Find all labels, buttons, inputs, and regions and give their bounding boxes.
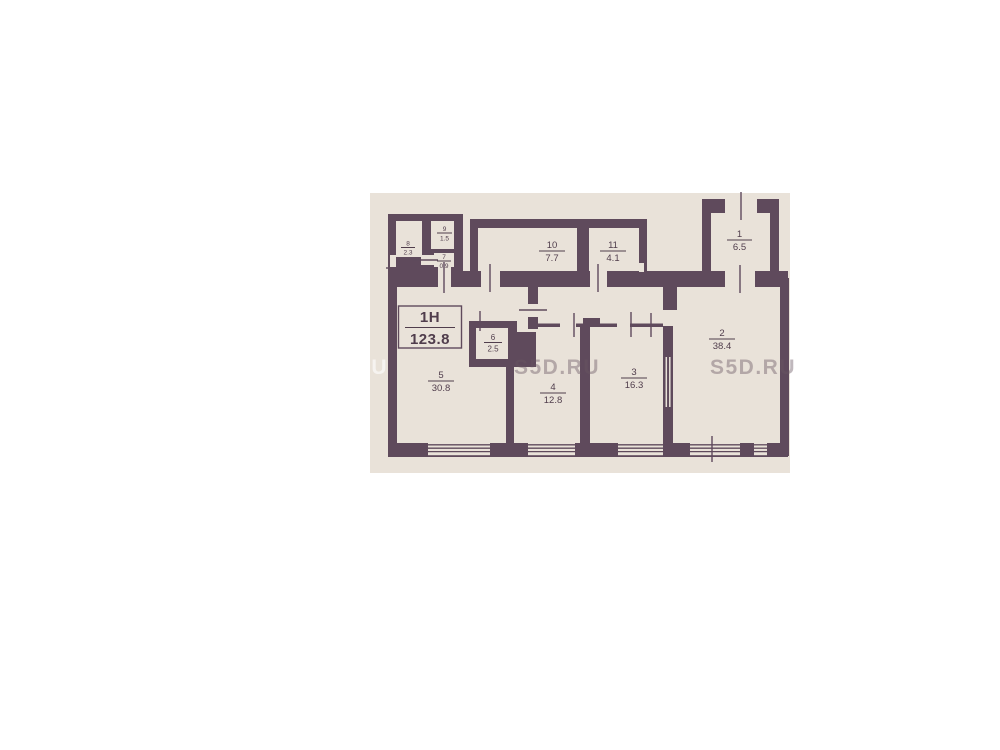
room-5-area: 30.8 (432, 383, 451, 394)
room11-notch (639, 263, 644, 272)
wall-main-horizontal-a (463, 271, 481, 287)
pier-4 (663, 443, 690, 457)
room-10-area: 7.7 (545, 253, 558, 264)
wall-room3-right (663, 326, 673, 443)
room-2-number: 2 (719, 328, 724, 339)
bottom-baseline (388, 455, 788, 457)
floor-plan: 1 6.5 2 38.4 3 16.3 4 12.8 5 30.8 6 2.5 (0, 0, 1000, 750)
watermark-right: S5D.RU (710, 356, 796, 379)
watermark-left: S5D.RU (302, 356, 388, 379)
wall-room3-4-divider (580, 326, 590, 443)
room-6-number: 6 (491, 333, 496, 342)
room-9-number: 9 (443, 226, 447, 233)
pier-6 (767, 443, 788, 457)
room-3-area: 16.3 (625, 380, 644, 391)
pier-2 (490, 443, 528, 457)
wall-hall-lower (528, 317, 538, 329)
wall-thin-a (536, 324, 560, 328)
wall-thin-thick-segment (583, 318, 600, 327)
room-9-area: 1.5 (440, 236, 449, 243)
wall-main-horizontal-b (500, 271, 590, 287)
room-7-number: 7 (442, 254, 446, 261)
room-4-number: 4 (550, 382, 555, 393)
wall-room2-stub (663, 287, 677, 310)
room-7-area: 0.9 (439, 263, 448, 270)
wall-room1-left (702, 199, 711, 287)
wall-thin-c (630, 324, 663, 328)
room-3-number: 3 (631, 367, 636, 378)
pier-1 (388, 443, 428, 457)
room-8-area: 2.3 (403, 250, 412, 257)
pier-5 (740, 443, 754, 457)
room-5-number: 5 (438, 370, 443, 381)
room-1-number: 1 (737, 229, 742, 240)
unit-name: 1Н (420, 309, 440, 326)
wall-hall-upper (528, 287, 538, 304)
room-4-area: 12.8 (544, 395, 563, 406)
room-11-area: 4.1 (606, 253, 619, 264)
unit-total-area: 123.8 (410, 331, 450, 348)
room8-niche (390, 255, 396, 267)
room-8-number: 8 (406, 241, 410, 248)
pier-3 (575, 443, 618, 457)
room-11-number: 11 (608, 240, 618, 251)
room-10-number: 10 (547, 240, 558, 251)
room-2-area: 38.4 (713, 341, 732, 352)
room-6-area: 2.5 (487, 345, 499, 354)
page: 1 6.5 2 38.4 3 16.3 4 12.8 5 30.8 6 2.5 (0, 0, 1000, 750)
watermarks: S5D.RU S5D.RU S5D.RU (302, 356, 796, 379)
room-1-area: 6.5 (733, 242, 746, 253)
wall-room4-5-divider (506, 366, 514, 443)
watermark-center: S5D.RU (514, 356, 600, 379)
wall-room10-top (470, 219, 647, 228)
wall-room10-11-divider (577, 228, 589, 272)
wall-room1-right (770, 199, 779, 287)
